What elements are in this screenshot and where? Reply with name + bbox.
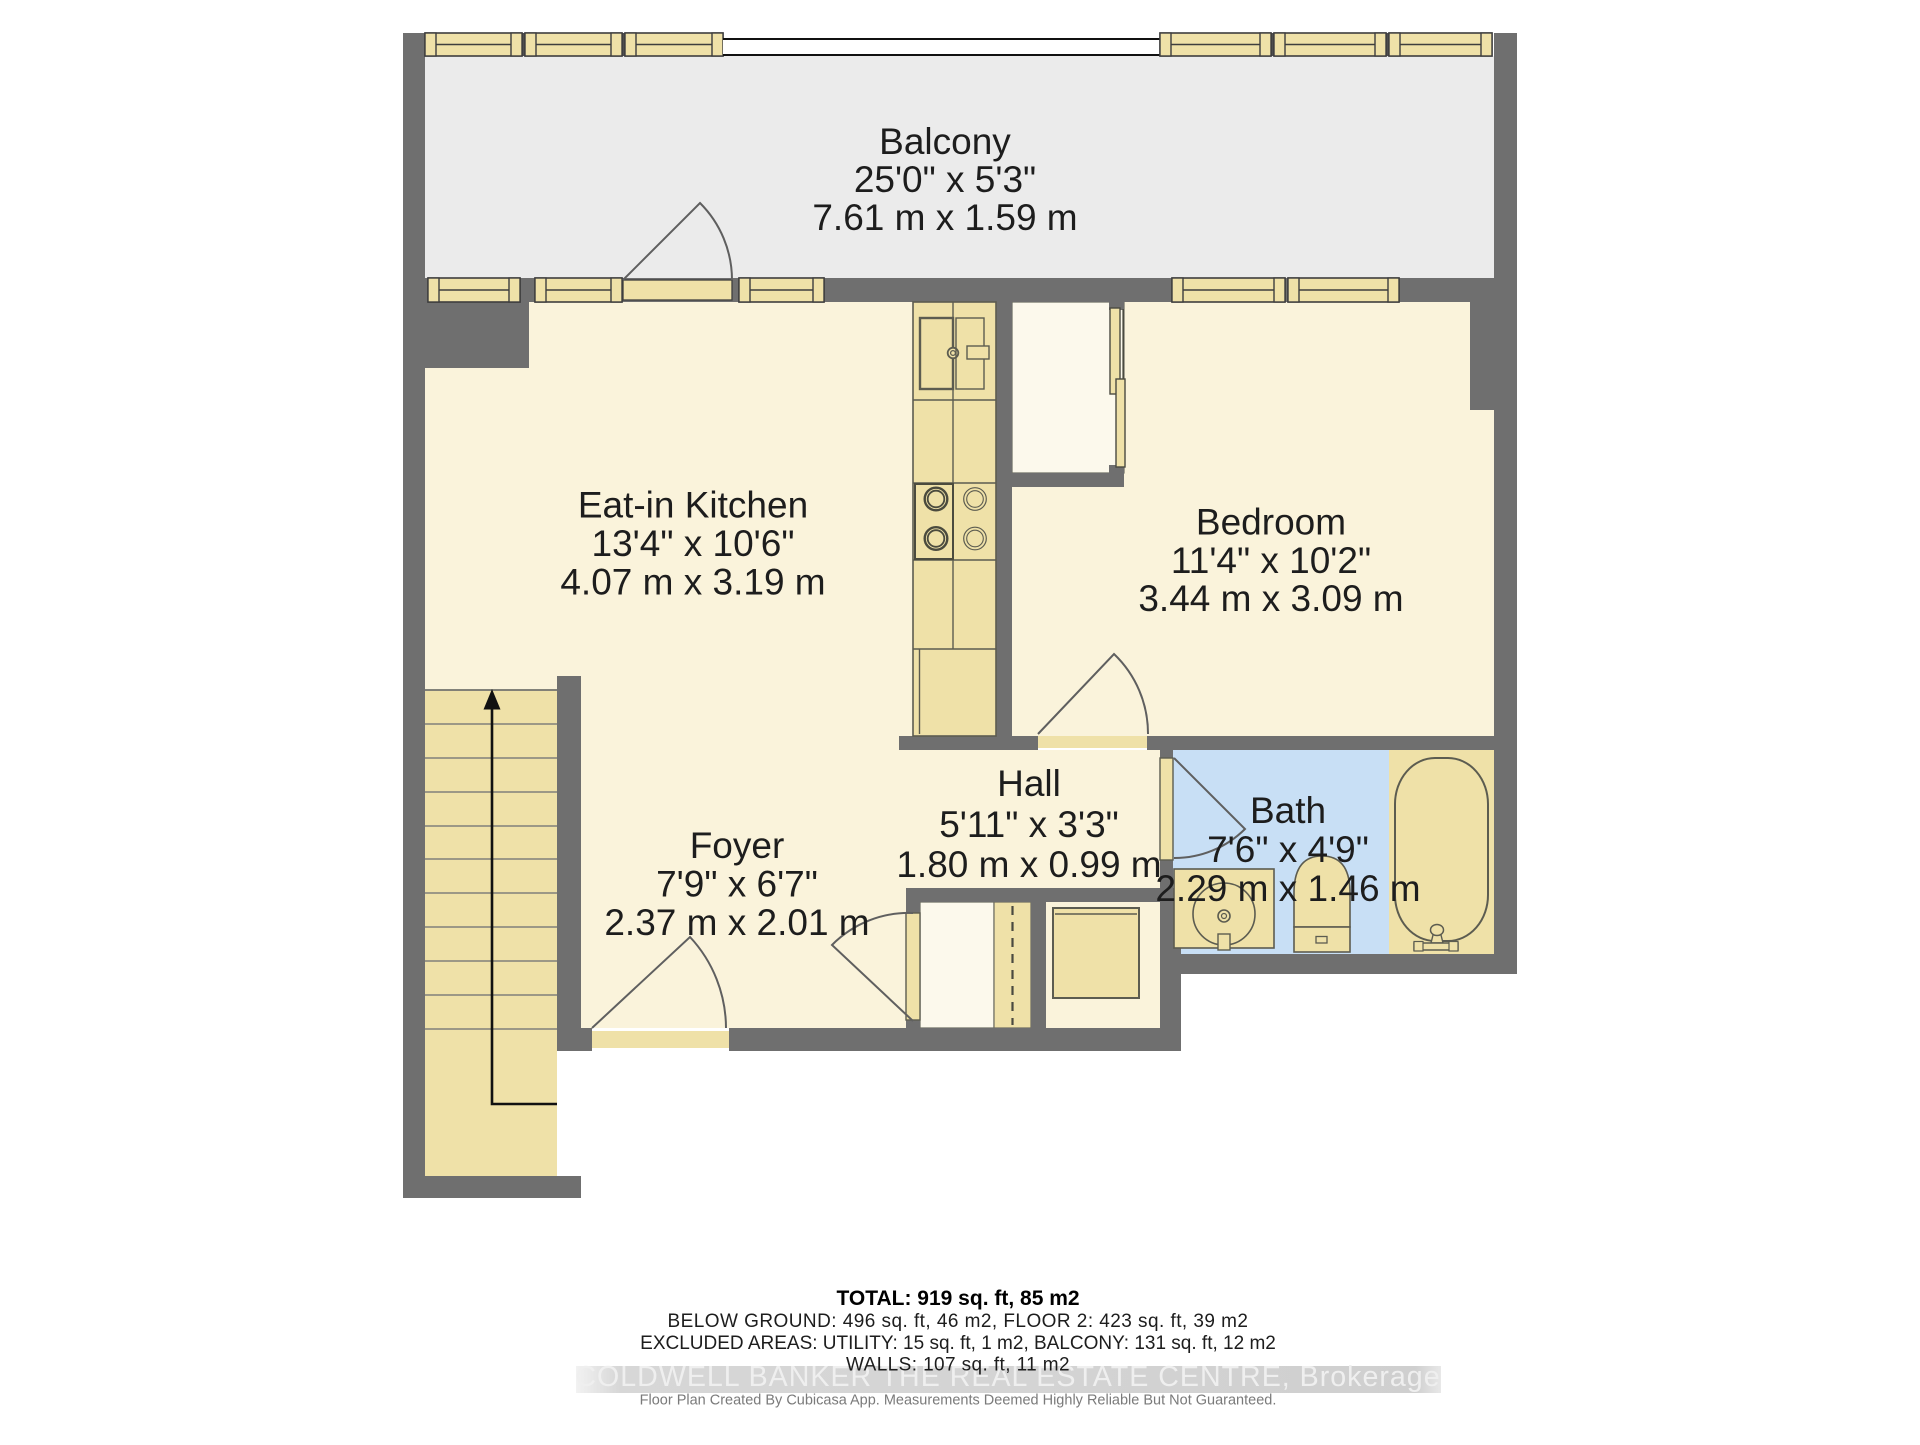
svg-text:Hall: Hall xyxy=(997,763,1061,804)
svg-text:Bath: Bath xyxy=(1250,790,1326,831)
svg-text:4.07 m x 3.19 m: 4.07 m x 3.19 m xyxy=(560,562,825,603)
svg-text:13'4" x 10'6": 13'4" x 10'6" xyxy=(592,523,795,564)
svg-text:BELOW GROUND: 496 sq. ft, 46 m: BELOW GROUND: 496 sq. ft, 46 m2, FLOOR 2… xyxy=(668,1311,1249,1332)
svg-text:5'11" x 3'3": 5'11" x 3'3" xyxy=(939,804,1119,845)
svg-text:7'9" x 6'7": 7'9" x 6'7" xyxy=(656,864,818,905)
svg-text:25'0" x 5'3": 25'0" x 5'3" xyxy=(854,159,1036,200)
svg-text:11'4" x 10'2": 11'4" x 10'2" xyxy=(1171,540,1371,581)
svg-text:WALLS: 107 sq. ft, 11 m2: WALLS: 107 sq. ft, 11 m2 xyxy=(846,1355,1070,1376)
svg-text:3.44 m x 3.09 m: 3.44 m x 3.09 m xyxy=(1138,578,1403,619)
svg-text:2.29 m x 1.46 m: 2.29 m x 1.46 m xyxy=(1155,868,1420,909)
svg-text:2.37 m x 2.01 m: 2.37 m x 2.01 m xyxy=(604,902,869,943)
svg-text:7'6" x 4'9": 7'6" x 4'9" xyxy=(1207,829,1369,870)
svg-text:Foyer: Foyer xyxy=(690,825,785,866)
svg-text:TOTAL: 919 sq. ft, 85 m2: TOTAL: 919 sq. ft, 85 m2 xyxy=(836,1287,1079,1310)
svg-text:Eat-in Kitchen: Eat-in Kitchen xyxy=(578,485,808,526)
svg-text:Balcony: Balcony xyxy=(879,121,1011,162)
svg-text:Bedroom: Bedroom xyxy=(1196,502,1346,543)
svg-text:EXCLUDED AREAS: UTILITY: 15 sq: EXCLUDED AREAS: UTILITY: 15 sq. ft, 1 m2… xyxy=(640,1333,1276,1354)
svg-text:7.61 m x 1.59 m: 7.61 m x 1.59 m xyxy=(812,197,1077,238)
svg-text:Floor Plan Created By Cubicasa: Floor Plan Created By Cubicasa App. Meas… xyxy=(640,1393,1277,1409)
svg-text:1.80 m x 0.99 m: 1.80 m x 0.99 m xyxy=(896,844,1161,885)
